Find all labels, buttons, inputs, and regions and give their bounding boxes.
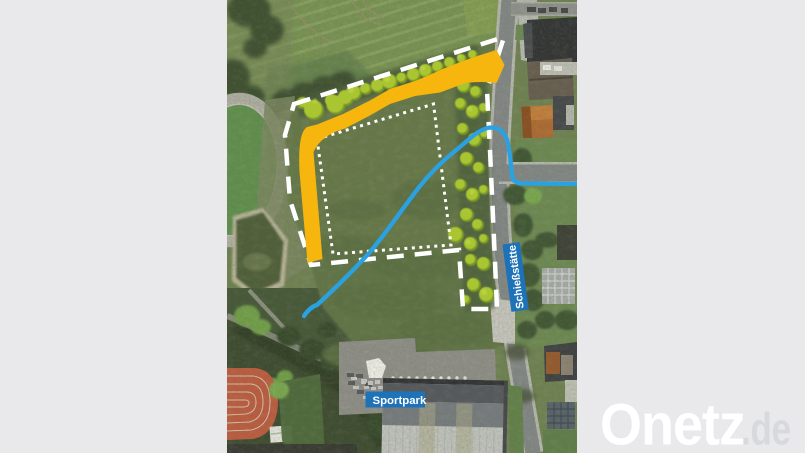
- svg-text:Sportpark: Sportpark: [373, 395, 427, 407]
